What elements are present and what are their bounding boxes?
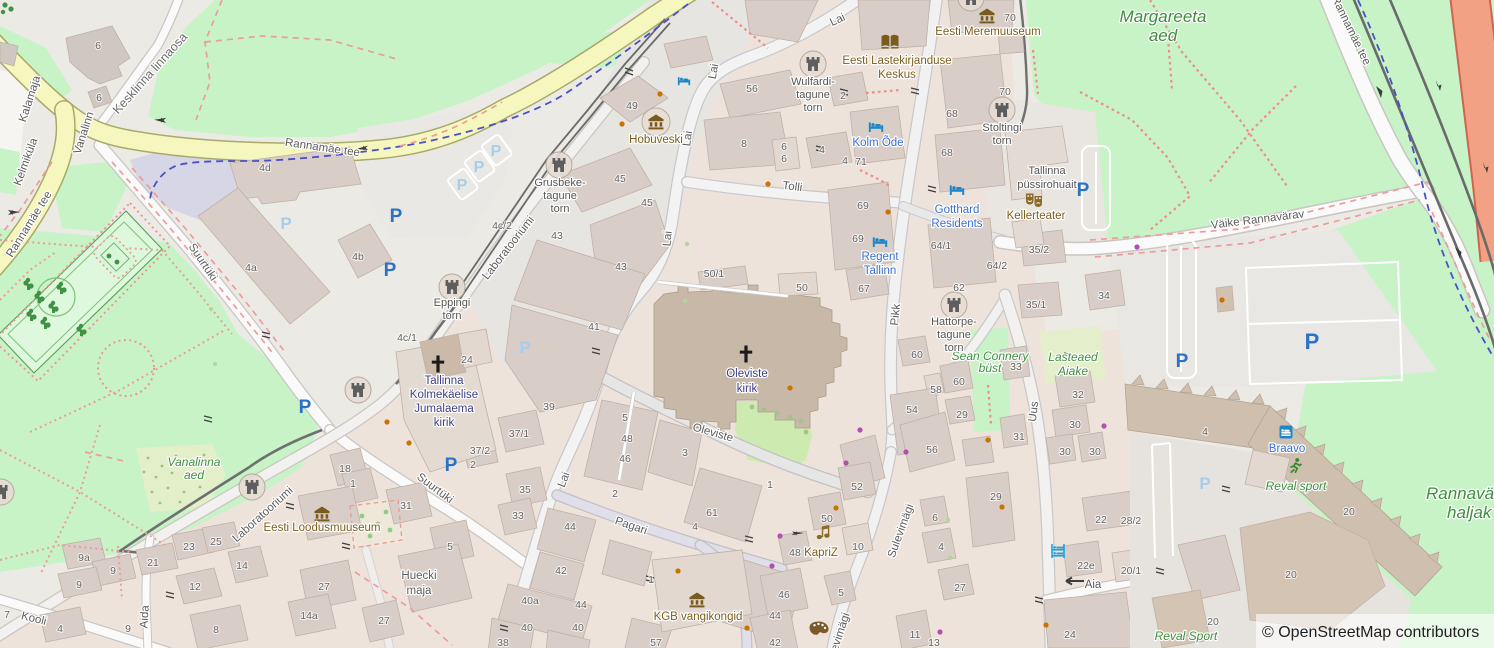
svg-text:Eesti Lastekirjanduse: Eesti Lastekirjanduse xyxy=(842,55,951,67)
svg-text:20: 20 xyxy=(1207,616,1219,628)
svg-text:Lasteaed: Lasteaed xyxy=(1048,350,1098,364)
svg-text:42: 42 xyxy=(769,637,781,648)
svg-text:60: 60 xyxy=(953,376,965,388)
svg-text:9: 9 xyxy=(125,623,131,635)
svg-text:P: P xyxy=(384,260,397,281)
svg-text:kirik: kirik xyxy=(737,383,758,395)
svg-text:5: 5 xyxy=(838,587,844,599)
svg-text:6: 6 xyxy=(781,153,787,165)
svg-text:38: 38 xyxy=(497,637,509,648)
svg-text:P: P xyxy=(1176,351,1189,372)
svg-text:43: 43 xyxy=(615,261,627,273)
svg-text:67: 67 xyxy=(858,283,870,295)
svg-text:50: 50 xyxy=(796,282,808,294)
svg-text:4: 4 xyxy=(938,541,944,553)
svg-text:4: 4 xyxy=(692,521,698,533)
svg-text:27: 27 xyxy=(318,581,330,593)
svg-text:Eppingi: Eppingi xyxy=(434,297,471,309)
svg-text:Pikk: Pikk xyxy=(889,303,903,326)
svg-text:KapriZ: KapriZ xyxy=(804,547,838,559)
svg-text:Aiake: Aiake xyxy=(1057,364,1088,378)
svg-text:5: 5 xyxy=(622,412,628,424)
svg-text:P: P xyxy=(1199,474,1210,493)
svg-text:P: P xyxy=(1305,329,1320,354)
svg-text:20/1: 20/1 xyxy=(1121,565,1142,577)
svg-text:44: 44 xyxy=(575,599,587,611)
svg-text:35/1: 35/1 xyxy=(1026,299,1047,311)
svg-text:maja: maja xyxy=(407,585,433,597)
svg-text:Grusbeke-: Grusbeke- xyxy=(534,177,586,189)
svg-text:40: 40 xyxy=(521,622,533,634)
svg-text:12: 12 xyxy=(189,581,201,593)
svg-text:Regent: Regent xyxy=(861,251,899,263)
svg-text:10: 10 xyxy=(852,541,864,553)
svg-text:34: 34 xyxy=(1098,290,1110,302)
svg-text:P: P xyxy=(491,143,502,160)
svg-text:64/1: 64/1 xyxy=(931,240,952,252)
svg-text:Hattorpe-: Hattorpe- xyxy=(931,316,977,328)
svg-text:Tallinna: Tallinna xyxy=(1028,165,1066,177)
svg-text:50: 50 xyxy=(821,513,833,525)
svg-text:2: 2 xyxy=(470,459,476,471)
svg-text:20: 20 xyxy=(1343,506,1355,518)
svg-text:5: 5 xyxy=(447,541,453,553)
svg-text:69: 69 xyxy=(857,200,869,212)
svg-text:45: 45 xyxy=(641,197,653,209)
svg-text:P: P xyxy=(1077,180,1090,201)
svg-text:P: P xyxy=(519,338,530,357)
svg-text:tagune: tagune xyxy=(543,190,577,202)
svg-text:41: 41 xyxy=(588,321,600,333)
svg-text:44: 44 xyxy=(769,610,781,622)
svg-text:45: 45 xyxy=(614,173,626,185)
svg-text:68: 68 xyxy=(941,147,953,159)
svg-text:P: P xyxy=(474,159,485,176)
svg-text:Vanalinna: Vanalinna xyxy=(168,455,221,469)
svg-text:4c/1: 4c/1 xyxy=(397,332,417,344)
svg-text:tagune: tagune xyxy=(937,329,971,341)
svg-text:Stoltingi: Stoltingi xyxy=(982,122,1021,134)
svg-text:28/2: 28/2 xyxy=(1121,515,1142,527)
svg-text:68: 68 xyxy=(946,108,958,120)
svg-text:Margareeta: Margareeta xyxy=(1120,7,1207,26)
svg-text:4: 4 xyxy=(1202,426,1208,438)
svg-text:56: 56 xyxy=(746,83,758,95)
svg-text:Kellerteater: Kellerteater xyxy=(1007,210,1066,222)
svg-text:torn: torn xyxy=(993,135,1012,147)
svg-text:Eesti Meremuuseum: Eesti Meremuuseum xyxy=(935,26,1040,38)
svg-text:35/2: 35/2 xyxy=(1029,244,1050,256)
svg-text:23: 23 xyxy=(183,541,195,553)
svg-text:71: 71 xyxy=(855,156,867,168)
svg-text:6: 6 xyxy=(95,40,101,52)
svg-text:13: 13 xyxy=(928,637,940,648)
svg-text:46: 46 xyxy=(778,589,790,601)
svg-text:© OpenStreetMap contributors: © OpenStreetMap contributors xyxy=(1262,624,1479,641)
svg-text:Kolm Õde: Kolm Õde xyxy=(852,136,903,149)
svg-text:35: 35 xyxy=(519,484,531,496)
svg-text:büst: büst xyxy=(979,361,1002,375)
svg-text:37/2: 37/2 xyxy=(470,445,491,457)
svg-text:43: 43 xyxy=(551,230,563,242)
svg-text:Gotthard: Gotthard xyxy=(935,204,980,216)
svg-text:8: 8 xyxy=(741,138,747,150)
svg-text:4: 4 xyxy=(819,144,825,156)
svg-text:Jumalaema: Jumalaema xyxy=(414,403,474,415)
svg-text:4: 4 xyxy=(57,623,63,635)
svg-text:30: 30 xyxy=(1089,446,1101,458)
svg-text:58: 58 xyxy=(930,384,942,396)
svg-text:60: 60 xyxy=(911,349,923,361)
svg-text:31: 31 xyxy=(1013,431,1025,443)
svg-text:Uus: Uus xyxy=(1027,401,1041,423)
svg-text:24: 24 xyxy=(1064,629,1076,641)
svg-text:18: 18 xyxy=(339,463,351,475)
svg-text:61: 61 xyxy=(706,507,718,519)
svg-text:21: 21 xyxy=(147,557,159,569)
svg-text:kirik: kirik xyxy=(434,417,455,429)
svg-text:P: P xyxy=(445,455,458,476)
svg-text:69: 69 xyxy=(852,233,864,245)
svg-text:7: 7 xyxy=(4,609,10,621)
svg-text:6: 6 xyxy=(781,141,787,153)
svg-text:2: 2 xyxy=(840,90,846,102)
svg-text:P: P xyxy=(457,177,468,194)
svg-text:46: 46 xyxy=(619,453,631,465)
svg-text:44: 44 xyxy=(564,521,576,533)
svg-text:30: 30 xyxy=(1069,419,1081,431)
svg-text:11: 11 xyxy=(910,629,921,641)
svg-text:62: 62 xyxy=(953,282,965,294)
svg-text:27: 27 xyxy=(954,582,966,594)
svg-text:40: 40 xyxy=(572,622,584,634)
svg-text:9a: 9a xyxy=(78,552,90,564)
svg-text:40a: 40a xyxy=(521,595,539,607)
svg-text:püssirohuait: püssirohuait xyxy=(1017,179,1076,191)
svg-text:Aia: Aia xyxy=(1085,579,1102,591)
svg-text:tagune: tagune xyxy=(796,89,830,101)
svg-text:torn: torn xyxy=(443,310,462,322)
svg-text:49: 49 xyxy=(626,100,638,112)
svg-text:39: 39 xyxy=(543,401,555,413)
svg-text:6: 6 xyxy=(932,512,938,524)
svg-text:Braavo: Braavo xyxy=(1269,443,1305,455)
svg-text:52: 52 xyxy=(851,481,863,493)
svg-text:54: 54 xyxy=(906,404,918,416)
svg-text:8: 8 xyxy=(213,624,219,636)
svg-text:Lai: Lai xyxy=(661,231,674,247)
svg-text:Oleviste: Oleviste xyxy=(726,368,768,380)
svg-text:torn: torn xyxy=(945,342,964,354)
svg-text:50/1: 50/1 xyxy=(704,268,725,280)
svg-text:aed: aed xyxy=(184,468,204,482)
svg-text:25: 25 xyxy=(210,536,222,548)
svg-text:1: 1 xyxy=(648,574,654,586)
svg-text:Keskus: Keskus xyxy=(878,69,916,81)
svg-text:Huecki: Huecki xyxy=(401,570,436,582)
svg-text:haljak: haljak xyxy=(1447,503,1493,522)
svg-text:20: 20 xyxy=(1285,569,1297,581)
svg-text:48: 48 xyxy=(789,547,801,559)
svg-text:P: P xyxy=(280,214,291,233)
svg-text:Eesti Loodusmuuseum: Eesti Loodusmuuseum xyxy=(264,522,381,534)
svg-text:3: 3 xyxy=(682,447,688,459)
svg-text:Reval Sport: Reval Sport xyxy=(1155,629,1218,643)
svg-text:Tallinn: Tallinn xyxy=(864,265,897,277)
svg-text:27: 27 xyxy=(378,615,390,627)
svg-text:4: 4 xyxy=(842,155,848,167)
svg-text:42: 42 xyxy=(555,565,567,577)
svg-text:Hobuveski: Hobuveski xyxy=(629,134,683,146)
svg-text:22e: 22e xyxy=(1077,560,1095,572)
svg-text:9: 9 xyxy=(110,565,116,577)
svg-text:1: 1 xyxy=(767,479,773,491)
svg-text:4c/2: 4c/2 xyxy=(492,220,512,232)
svg-text:70: 70 xyxy=(999,86,1011,98)
svg-text:1: 1 xyxy=(350,478,356,490)
svg-text:29: 29 xyxy=(990,491,1002,503)
svg-text:Residents: Residents xyxy=(931,218,982,230)
svg-text:29: 29 xyxy=(956,409,968,421)
svg-text:KGB vangikongid: KGB vangikongid xyxy=(654,611,743,623)
svg-text:32: 32 xyxy=(1072,389,1084,401)
svg-text:Aida: Aida xyxy=(138,604,152,628)
svg-text:P: P xyxy=(390,206,403,227)
svg-text:24: 24 xyxy=(461,354,473,366)
svg-text:57: 57 xyxy=(650,637,662,648)
svg-text:70: 70 xyxy=(1004,12,1016,24)
svg-text:torn: torn xyxy=(551,203,570,215)
svg-text:2: 2 xyxy=(612,488,618,500)
svg-text:Reval sport: Reval sport xyxy=(1266,479,1327,493)
svg-text:33: 33 xyxy=(512,510,524,522)
svg-text:6: 6 xyxy=(96,92,102,104)
svg-text:Tallinna: Tallinna xyxy=(425,375,465,387)
svg-text:56: 56 xyxy=(926,444,938,456)
svg-text:9: 9 xyxy=(76,579,82,591)
svg-text:Lai: Lai xyxy=(681,130,695,147)
svg-text:aed: aed xyxy=(1149,26,1178,45)
svg-text:torn: torn xyxy=(804,102,823,114)
svg-text:4d: 4d xyxy=(259,162,271,174)
svg-text:Wulfardi-: Wulfardi- xyxy=(791,76,835,88)
svg-text:30: 30 xyxy=(1059,446,1071,458)
svg-text:37/1: 37/1 xyxy=(509,428,530,440)
svg-text:31: 31 xyxy=(400,500,412,512)
svg-text:4b: 4b xyxy=(352,251,364,263)
svg-text:Kolmekäelise: Kolmekäelise xyxy=(410,389,478,401)
svg-text:P: P xyxy=(299,397,312,418)
svg-text:33: 33 xyxy=(1010,361,1022,373)
svg-text:22: 22 xyxy=(1095,514,1107,526)
svg-text:4a: 4a xyxy=(245,262,257,274)
svg-text:14a: 14a xyxy=(300,610,318,622)
svg-text:64/2: 64/2 xyxy=(987,260,1008,272)
svg-text:14: 14 xyxy=(236,560,248,572)
svg-text:48: 48 xyxy=(621,433,633,445)
svg-text:Tolli: Tolli xyxy=(782,180,803,194)
svg-text:Rannavärava: Rannavärava xyxy=(1426,484,1494,503)
